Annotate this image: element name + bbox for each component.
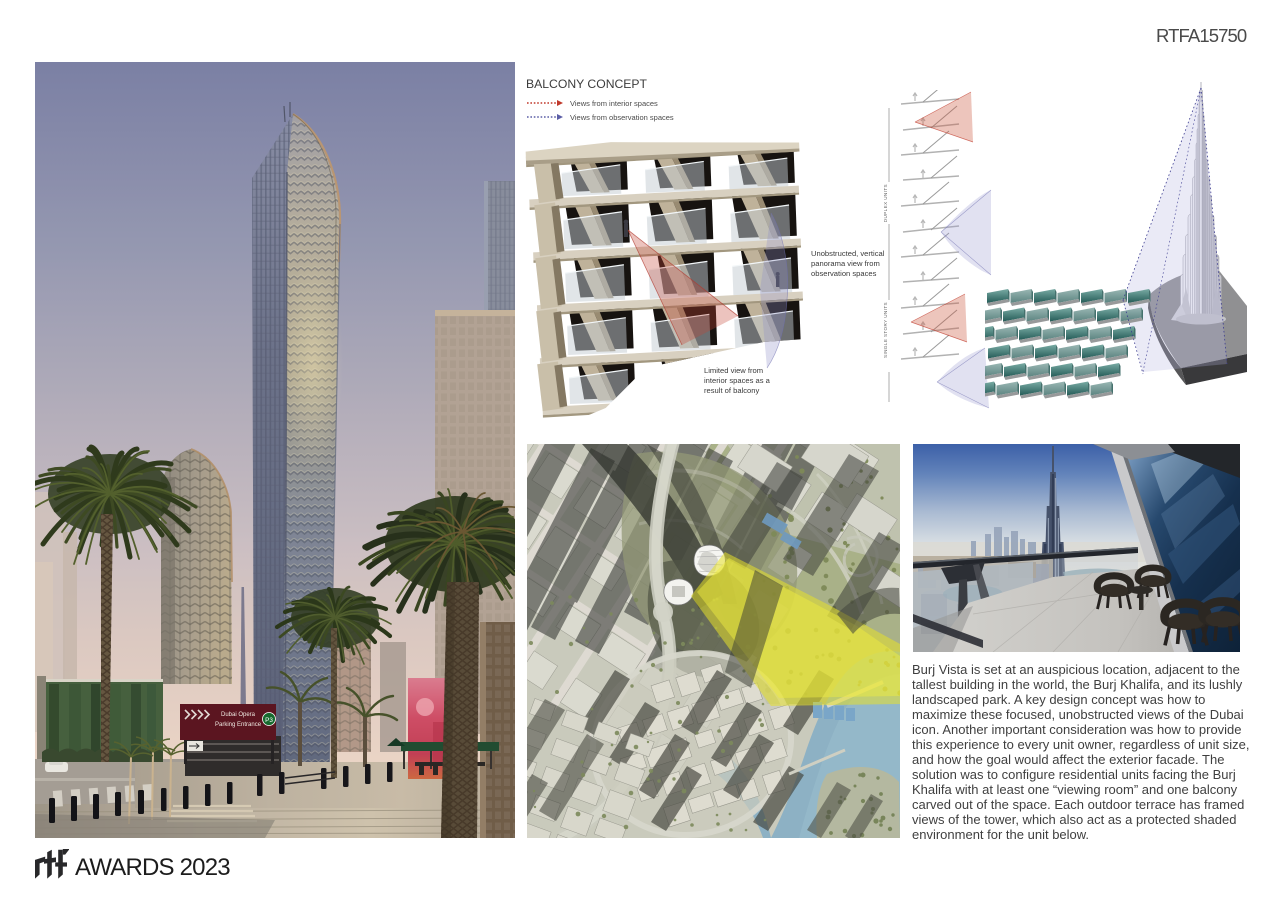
svg-text:Dubai Opera: Dubai Opera (221, 712, 256, 718)
svg-text:Unobstructed, vertical: Unobstructed, vertical (811, 249, 885, 258)
svg-text:Views from observation spaces: Views from observation spaces (570, 113, 674, 122)
svg-text:panorama view from: panorama view from (811, 259, 880, 268)
svg-text:Parking Entrance: Parking Entrance (215, 722, 262, 728)
svg-text:Limited view from: Limited view from (704, 366, 763, 375)
svg-text:P3: P3 (265, 717, 273, 724)
svg-text:interior spaces as a: interior spaces as a (704, 376, 771, 385)
svg-text:SINGLE STORY UNITS: SINGLE STORY UNITS (883, 302, 888, 358)
svg-text:DUPLEX UNITS: DUPLEX UNITS (883, 184, 888, 222)
svg-text:result of balcony: result of balcony (704, 386, 759, 395)
svg-text:Views from interior spaces: Views from interior spaces (570, 99, 658, 108)
svg-text:observation spaces: observation spaces (811, 269, 877, 278)
